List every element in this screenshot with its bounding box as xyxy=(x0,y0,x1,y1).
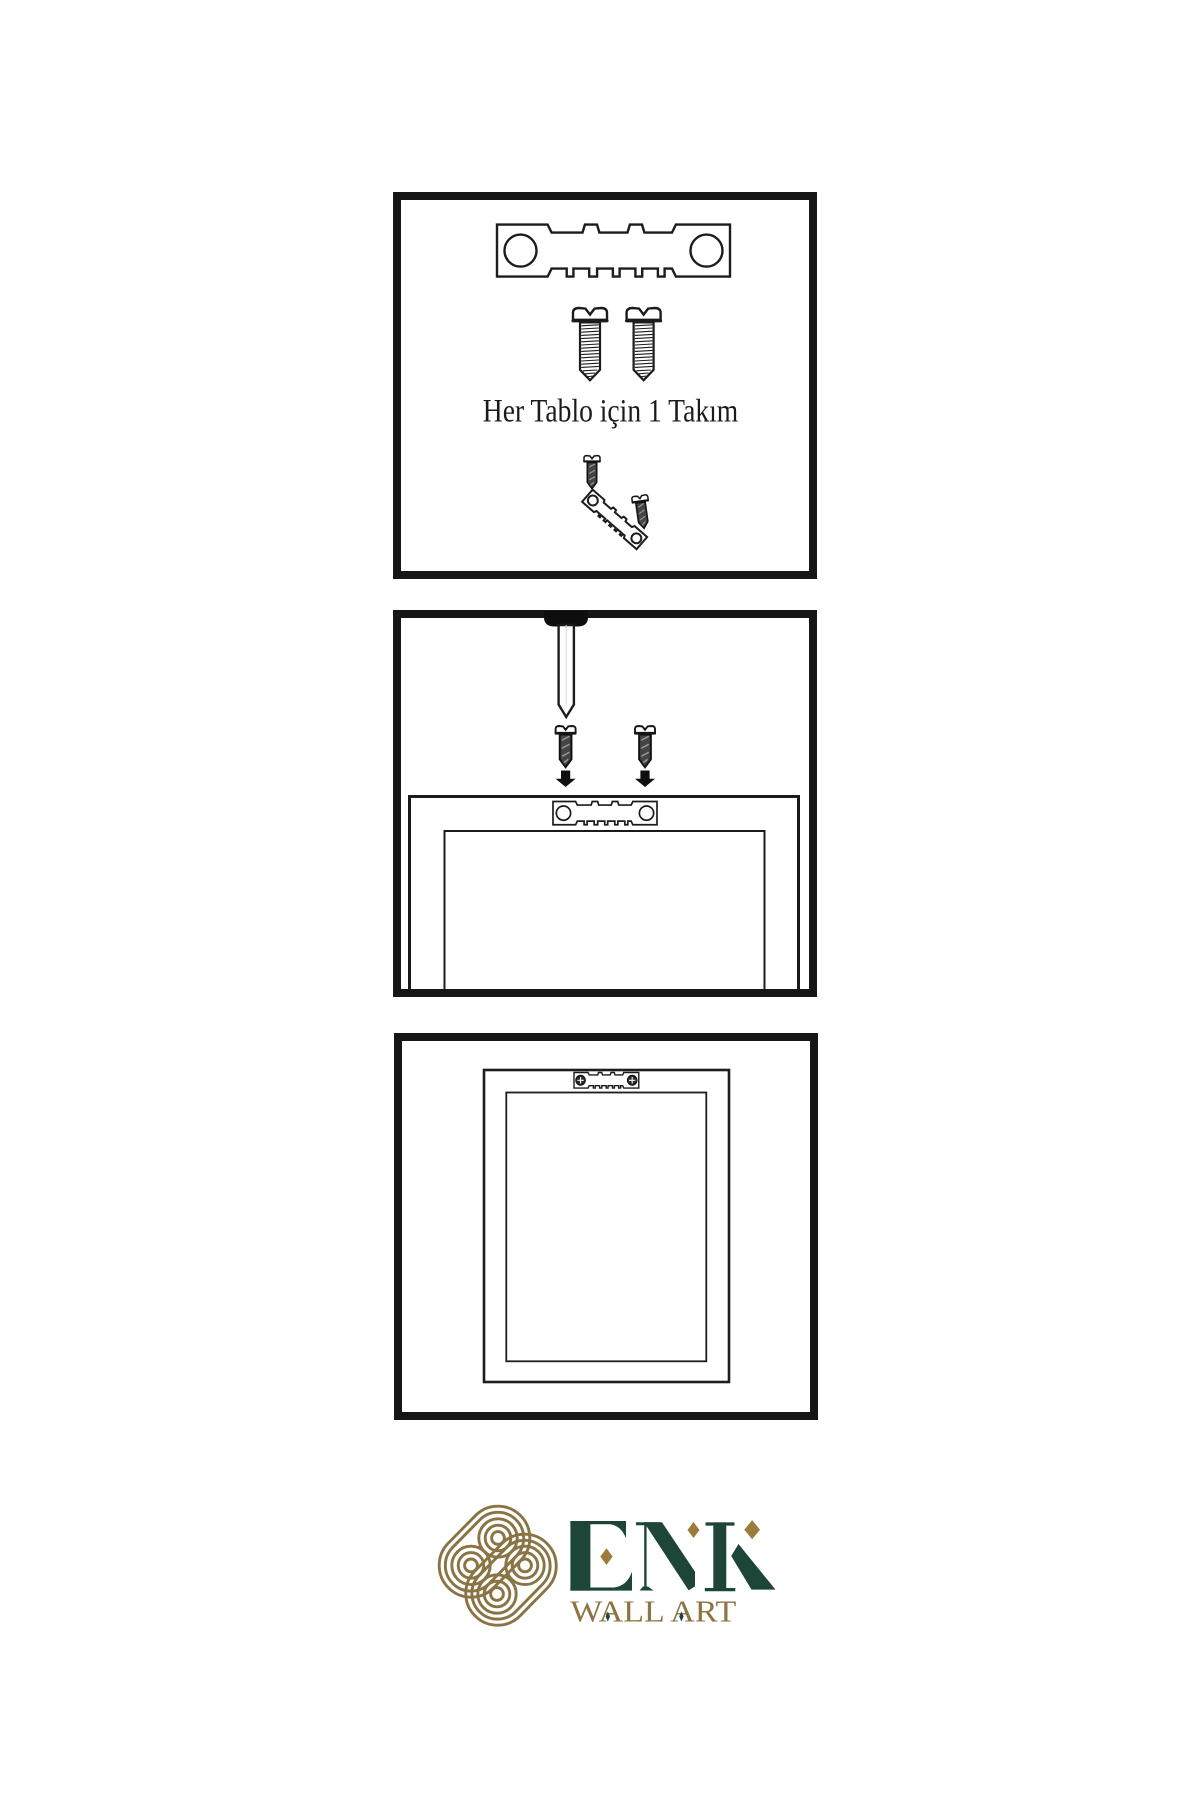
svg-text:WALL ART: WALL ART xyxy=(570,1595,736,1629)
svg-text:Her Tablo için 1 Takım: Her Tablo için 1 Takım xyxy=(483,394,739,430)
